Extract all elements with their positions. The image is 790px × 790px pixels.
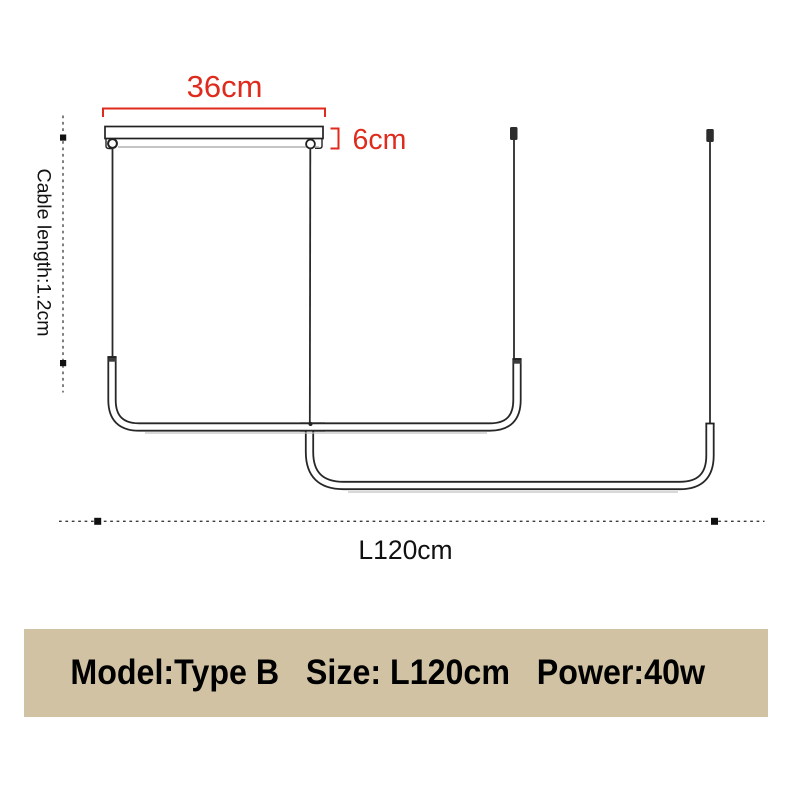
- svg-text:36cm: 36cm: [187, 69, 263, 104]
- svg-text:6cm: 6cm: [353, 124, 407, 156]
- svg-text:L120cm: L120cm: [358, 535, 452, 565]
- svg-text:Cable length:1.2cm: Cable length:1.2cm: [32, 168, 54, 336]
